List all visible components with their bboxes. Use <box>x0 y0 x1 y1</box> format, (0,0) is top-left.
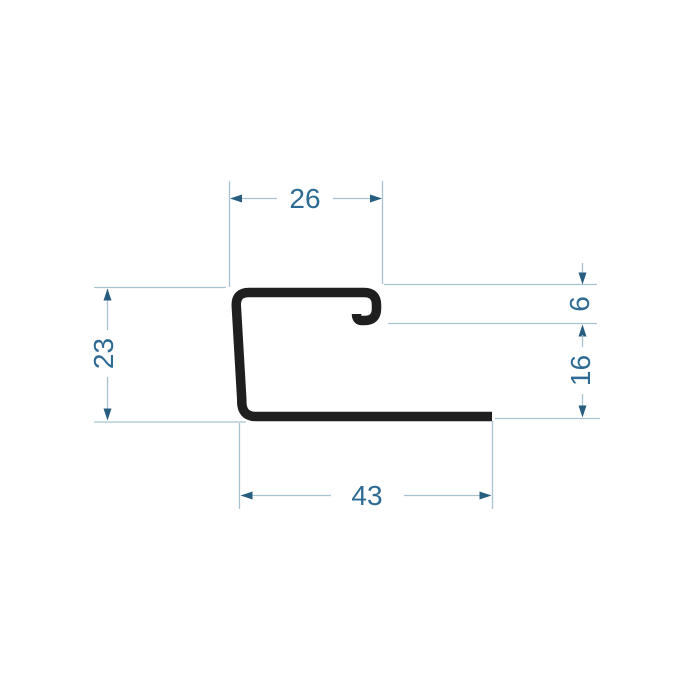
arrow-left-icon <box>241 492 253 500</box>
dimension-bottom-width: 43 <box>240 421 493 511</box>
dimension-hook-depth: 6 <box>384 263 597 324</box>
dimension-top-width: 26 <box>230 181 383 287</box>
profile-outline <box>236 293 492 417</box>
arrow-right-icon <box>370 195 382 203</box>
arrow-down-icon <box>104 409 112 421</box>
arrow-down-icon <box>579 273 587 285</box>
arrow-down-icon <box>579 406 587 418</box>
profile-drawing: 26 23 6 16 <box>0 0 700 700</box>
arrow-left-icon <box>230 195 242 203</box>
dimension-label-left-height: 23 <box>88 338 119 369</box>
drawing-canvas: 26 23 6 16 <box>0 0 700 700</box>
dimension-left-height: 23 <box>88 288 246 423</box>
arrow-up-icon <box>104 289 112 301</box>
dimension-label-right-inner-height: 16 <box>565 355 596 386</box>
dimension-label-top-width: 26 <box>289 183 320 214</box>
arrow-right-icon <box>480 492 492 500</box>
dimension-label-hook-depth: 6 <box>564 296 595 312</box>
dimension-right-inner-height: 16 <box>495 325 600 419</box>
dimension-label-bottom-width: 43 <box>351 480 382 511</box>
arrow-up-icon <box>579 325 587 337</box>
